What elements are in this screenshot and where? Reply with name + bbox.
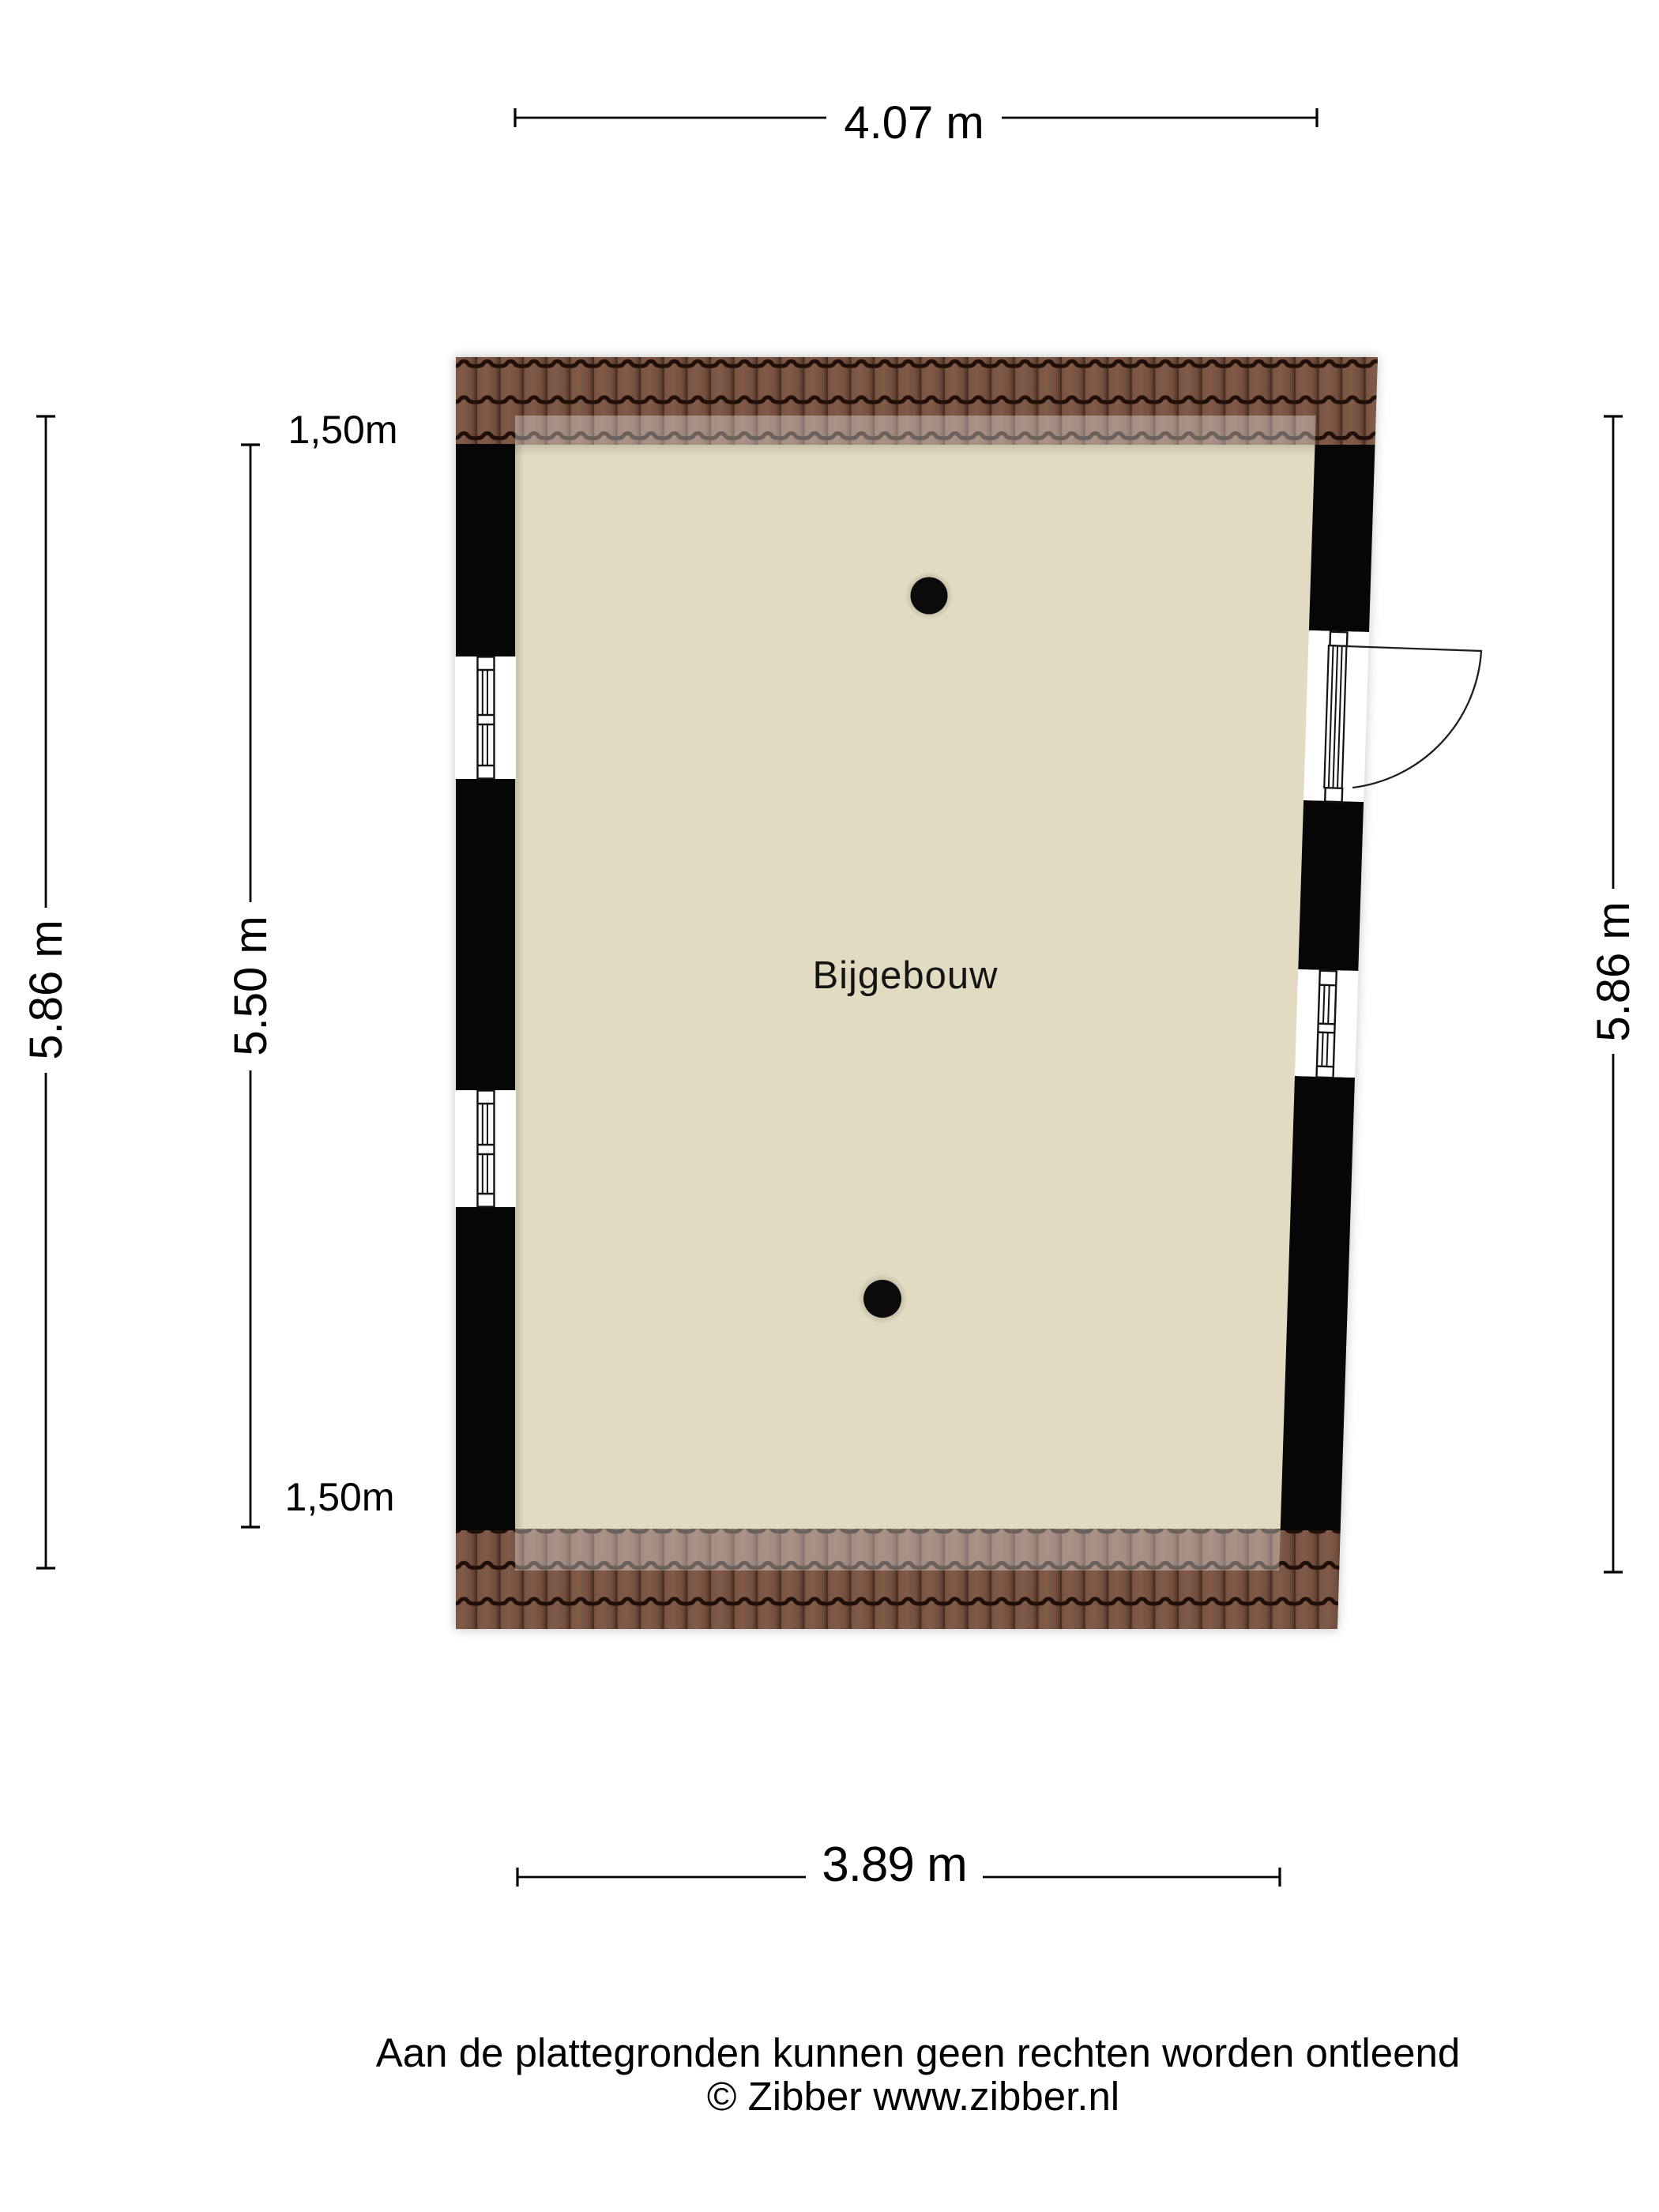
svg-text:Aan de plattegronden kunnen ge: Aan de plattegronden kunnen geen rechten… xyxy=(376,2030,1460,2075)
svg-text:Bijgebouw: Bijgebouw xyxy=(812,954,998,997)
svg-text:3.89 m: 3.89 m xyxy=(822,1838,967,1892)
svg-text:5.86 m: 5.86 m xyxy=(1588,901,1639,1041)
svg-text:© Zibber www.zibber.nl: © Zibber www.zibber.nl xyxy=(707,2074,1119,2119)
svg-text:1,50m: 1,50m xyxy=(288,408,398,452)
svg-text:5.50 m: 5.50 m xyxy=(225,916,276,1055)
svg-text:4.07 m: 4.07 m xyxy=(844,97,984,149)
svg-text:5.86 m: 5.86 m xyxy=(21,920,72,1059)
svg-text:1,50m: 1,50m xyxy=(285,1475,395,1519)
